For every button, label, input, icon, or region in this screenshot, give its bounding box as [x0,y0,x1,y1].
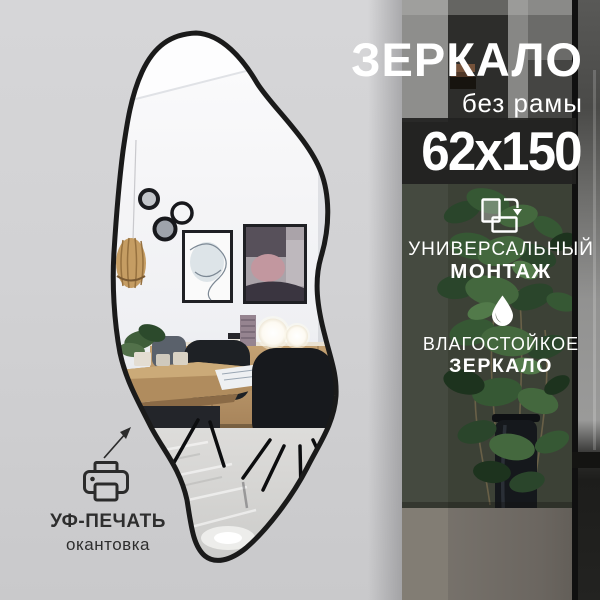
print-feature-line2: окантовка [38,533,178,556]
printer-icon [80,458,132,508]
picture-frame-left [182,230,233,303]
product-card: ЗЕРКАЛО без рамы 62x150 УНИВЕРСАЛЬНЫЙ МО… [0,0,600,600]
print-feature-line1: УФ-ПЕЧАТЬ [38,510,178,533]
wicker-lamp [116,238,146,288]
picture-frame-right [243,224,307,304]
print-feature: УФ-ПЕЧАТЬ окантовка [38,510,178,556]
mirror-reflection [100,20,350,580]
